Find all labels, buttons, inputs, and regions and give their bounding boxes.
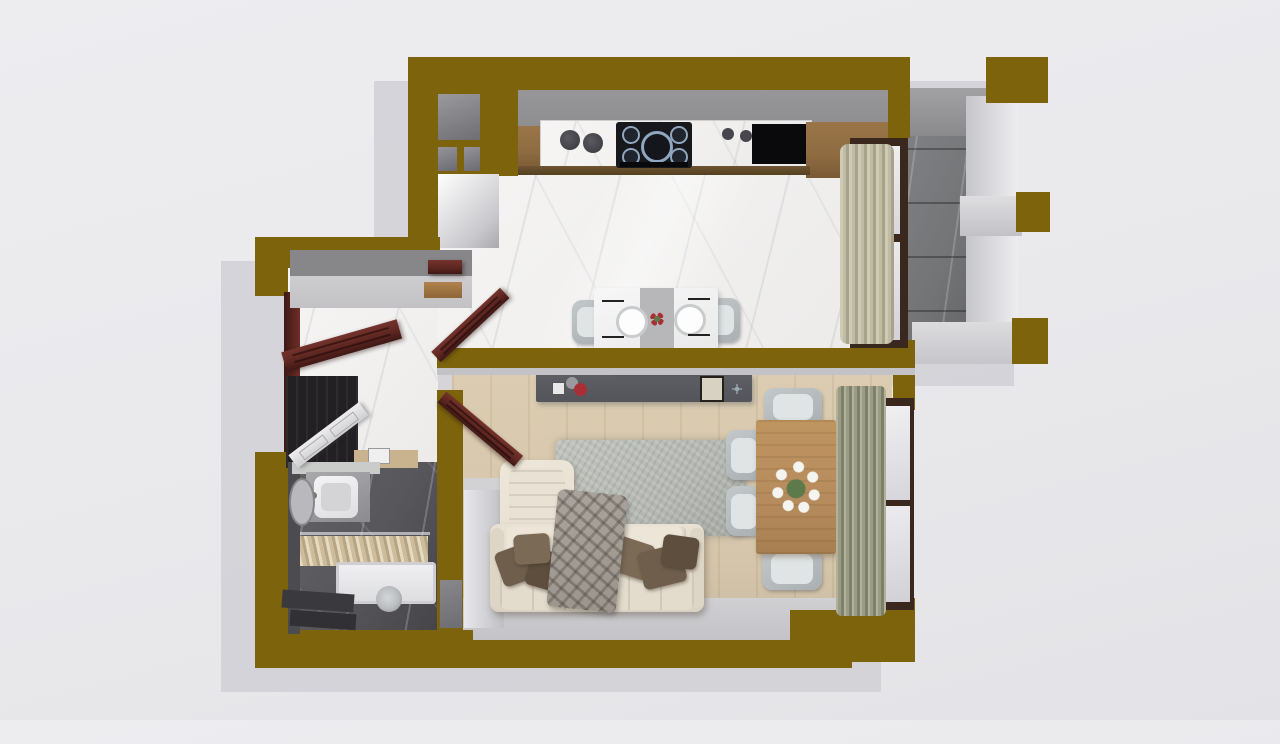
- console-decor-box: [552, 382, 565, 395]
- plate-right: [674, 304, 706, 336]
- chair-cushion: [731, 438, 756, 473]
- bathroom-sink: [314, 476, 358, 518]
- counter-knob: [722, 128, 734, 140]
- console-decor-red-vase: [574, 383, 587, 396]
- sink-bowl-left: [560, 130, 580, 150]
- chair-cushion: [771, 554, 813, 583]
- gas-stove: [616, 122, 692, 168]
- cutlery: [688, 298, 710, 300]
- console-decor-star: [732, 384, 742, 394]
- oval-mirror: [289, 478, 315, 526]
- east-wall-upper-stub: [888, 90, 910, 138]
- dining-chair-bottom: [762, 548, 822, 590]
- divider-wall-olive-cap: [1016, 192, 1050, 232]
- sofa-pillow: [513, 533, 551, 565]
- plaid-throw: [546, 489, 628, 614]
- sink-basin: [321, 483, 351, 511]
- kitchen-living-wall: [437, 348, 915, 368]
- kitchen-table: [594, 288, 718, 350]
- balcony-divider-wall: [960, 196, 1022, 236]
- shaft-niche-small: [438, 147, 457, 171]
- balcony-lower-wall: [912, 322, 1016, 364]
- corner-column: [437, 174, 499, 248]
- cutlery: [688, 334, 710, 336]
- kitchen-door-header: [428, 260, 462, 274]
- chair-cushion: [731, 494, 756, 529]
- olive-stub-bottom-right: [1012, 318, 1048, 364]
- floor-plan-render: [0, 0, 1280, 720]
- tv-console: [536, 374, 752, 402]
- stove-burner: [670, 126, 688, 144]
- stove-burner: [622, 126, 640, 144]
- shaft-niche-small: [464, 147, 480, 171]
- living-window-frame: [882, 398, 914, 610]
- cutlery: [602, 300, 624, 302]
- red-flower-centerpiece: [650, 312, 664, 326]
- west-wall-lower: [255, 452, 288, 644]
- living-south-wall: [455, 640, 807, 668]
- sofa-pillow: [660, 534, 700, 571]
- kitchen-living-wall-top-edge: [437, 368, 915, 375]
- sink-bowl-right: [583, 133, 603, 153]
- north-wall: [408, 57, 910, 90]
- chrome-drain-cover: [376, 586, 402, 612]
- chair-cushion: [773, 394, 814, 421]
- counter-knob: [740, 130, 752, 142]
- shaft-niche-large: [438, 94, 480, 140]
- stove-burner-center: [641, 131, 673, 163]
- olive-stub-top-right: [986, 57, 1048, 103]
- kitchen-curtain: [840, 144, 894, 344]
- hall-shelf-wood-end: [424, 282, 462, 298]
- white-flower-centerpiece: [770, 458, 822, 514]
- photo-frame: [700, 376, 724, 402]
- black-basin: [752, 124, 806, 164]
- living-curtain: [836, 386, 886, 616]
- window-pane: [886, 406, 910, 500]
- stove-control-strip: [620, 162, 688, 167]
- shower-glass-edge: [300, 532, 430, 535]
- window-pane: [886, 506, 910, 602]
- cutlery: [602, 336, 624, 338]
- shaft-west-wall: [408, 88, 438, 240]
- plate-left: [616, 306, 648, 338]
- bathroom-wall-niche: [440, 580, 462, 628]
